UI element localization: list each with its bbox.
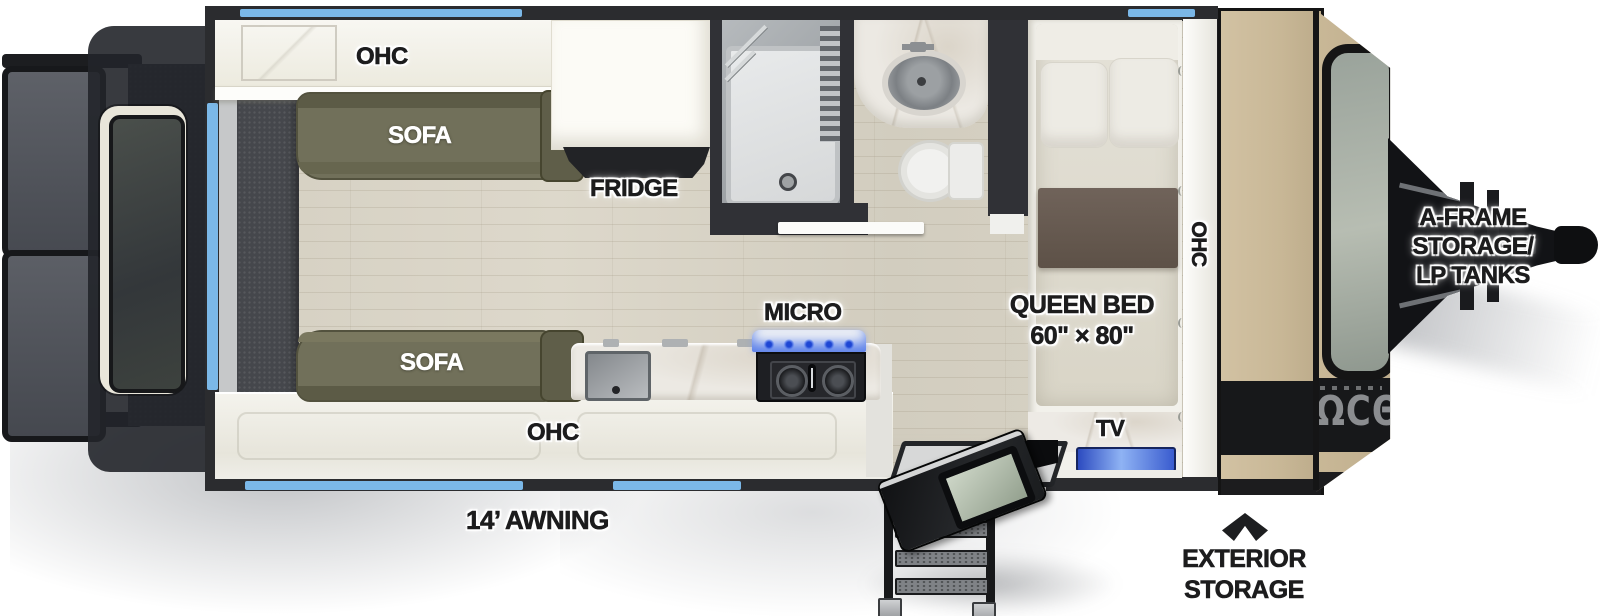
sofa-bottom-backrest [298, 386, 550, 400]
cabinet-panel-line-1 [237, 412, 541, 460]
label-fridge: FRIDGE [590, 175, 678, 203]
front-cap-seam [1313, 10, 1319, 490]
bathroom-sink [882, 50, 966, 116]
floorplan-canvas: ΩCΘU OHC SOFA FRIDGE MICRO SOFA OHC QUEE… [0, 0, 1600, 616]
step-tread-4 [895, 578, 989, 595]
stove-burner-right [822, 365, 854, 397]
cabinet-panel-line-2 [577, 412, 837, 460]
label-ohc-top: OHC [356, 43, 408, 71]
label-micro: MICRO [764, 299, 842, 327]
bathroom-divider-wall [840, 20, 854, 210]
tv [1076, 447, 1176, 472]
bathroom-shower [722, 20, 840, 208]
shower-drain [779, 173, 797, 191]
cabinet-hinge-mark-2 [1178, 186, 1186, 196]
awning-strip-bottom-1 [245, 481, 523, 490]
label-ohc-bottom: OHC [527, 419, 579, 447]
roof-vent-outline [241, 25, 337, 81]
sofa-top-backrest [298, 94, 550, 108]
bathroom-door-jamb [990, 214, 1024, 234]
sofa-top-seat-edge [298, 162, 550, 174]
label-ohc-front-vertical: OHC [1186, 202, 1210, 286]
awning-strip-bottom-2 [613, 481, 741, 490]
label-awning: 14’ AWNING [466, 505, 609, 536]
chevron-up-icon [1222, 513, 1268, 541]
stove-burner-left [776, 365, 808, 397]
brand-logo: ΩCΘU [1316, 388, 1390, 436]
bathroom-vanity [854, 20, 988, 128]
stove-glow-top [752, 330, 866, 352]
sink-drain [917, 77, 926, 86]
sofa-bottom-seat-edge [298, 332, 550, 342]
label-exterior-line2: STORAGE [1166, 575, 1322, 606]
fridge-base [563, 147, 710, 178]
front-cap-side-bottom-trim [1316, 472, 1394, 492]
counter-hinge-tab-1 [603, 339, 619, 347]
shower-shelf-slats [820, 26, 840, 142]
wall-bottom-right [1046, 477, 1218, 491]
label-a-frame-storage: A-FRAME STORAGE/ LP TANKS [1396, 203, 1550, 290]
stove-body [756, 352, 866, 402]
label-a-frame-line2: STORAGE/ [1396, 232, 1550, 261]
hitch-coupler [1554, 226, 1598, 264]
awning-strip-top-front [1128, 9, 1195, 17]
label-sofa-top: SOFA [388, 122, 451, 150]
cabinet-hinge-mark-3 [1178, 318, 1186, 328]
rear-cap [88, 26, 220, 472]
label-queen-bed-line1: QUEEN BED [1000, 290, 1164, 321]
bed-throw-blanket [1038, 188, 1178, 268]
rear-window-glass [109, 115, 185, 393]
step-tread-3 [895, 550, 989, 567]
rear-window-frame [100, 106, 186, 394]
bed-pillow-left [1040, 62, 1108, 148]
label-queen-bed-line2: 60" × 80" [1000, 321, 1164, 352]
awning-strip-rear-vertical [207, 103, 218, 390]
sink-faucet [910, 42, 926, 52]
counter-hinge-tab-2 [662, 339, 688, 347]
bed-pillow-right [1109, 58, 1179, 148]
front-cap-face-bottom-trim [1221, 479, 1321, 495]
bed-headboard [1036, 24, 1178, 60]
step-foot-left [878, 598, 902, 616]
kitchen-faucet [612, 386, 620, 394]
kitchen-sink [585, 351, 651, 401]
front-cap-face-logo-band [1221, 381, 1321, 455]
cabinet-hinge-mark-1 [1178, 66, 1186, 76]
stove-handle [811, 368, 813, 388]
front-cap-side-logo-band: ΩCΘU [1316, 378, 1394, 452]
awning-strip-top-long [240, 9, 522, 17]
front-cap-face [1218, 8, 1324, 495]
front-window-frame [1322, 44, 1398, 380]
stove-handle-slot [808, 364, 816, 392]
step-foot-right [972, 602, 996, 616]
bathroom-door [778, 222, 924, 234]
fridge-cabinet [551, 20, 712, 150]
bathroom-wall-right [988, 20, 1028, 216]
label-sofa-bottom: SOFA [400, 349, 463, 377]
front-cap-side: ΩCΘU [1316, 10, 1394, 492]
label-a-frame-line3: LP TANKS [1396, 261, 1550, 290]
label-a-frame-line1: A-FRAME [1396, 203, 1550, 232]
label-queen-bed: QUEEN BED 60" × 80" [1000, 290, 1164, 352]
stove-led-row [759, 339, 859, 350]
label-exterior-storage: EXTERIOR STORAGE [1166, 544, 1322, 606]
toilet-tank [948, 142, 984, 200]
cabinet-hinge-mark-4 [1178, 412, 1186, 422]
label-tv: TV [1096, 415, 1124, 442]
label-exterior-line1: EXTERIOR [1166, 544, 1322, 575]
